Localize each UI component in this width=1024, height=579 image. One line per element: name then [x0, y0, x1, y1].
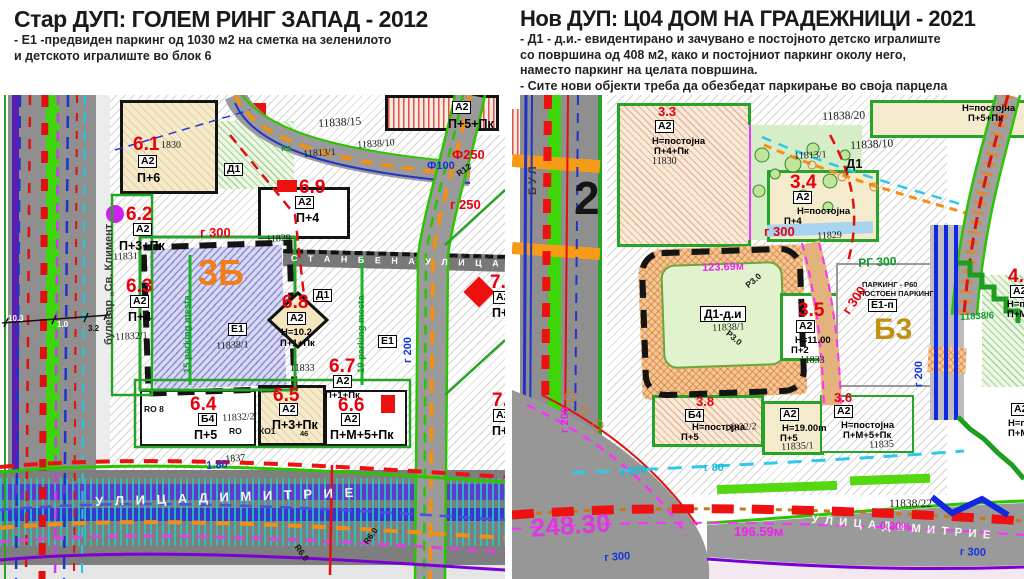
label-1-80: 1.80: [206, 460, 228, 472]
parcel-11838-10-r: 11838/10: [850, 139, 894, 153]
label-block-2: 2: [574, 175, 600, 221]
parcel-11835: 11835: [869, 440, 894, 451]
parcel-11832-1: 11832/1: [115, 331, 148, 343]
label-196-59: 196.59м: [734, 525, 783, 538]
label-3-4-class: А2: [793, 191, 812, 204]
label-3-3: 3.3: [658, 105, 676, 118]
label-7-x-class: А2: [493, 409, 505, 422]
parcel-11838-10: 11838/10: [357, 138, 395, 151]
label-g80: г 80: [704, 463, 724, 474]
label-248-30: 248.30: [530, 509, 611, 540]
label-15-parking: 15 parking mesta: [183, 295, 193, 373]
label-3-4-height: Н=постојна: [797, 207, 850, 217]
right-note-3: наместо паркинг на целата површина.: [520, 63, 1020, 79]
label-g300-diag: г 300: [840, 284, 868, 317]
label-3-4: 3.4: [790, 173, 816, 192]
label-rg-300: РГ 300: [858, 255, 897, 269]
label-3-3-class: А2: [655, 120, 674, 133]
parcel-11832-2-r: 11832/2: [724, 422, 757, 434]
parcel-1830: 1830: [161, 141, 181, 151]
label-6-8-class: А2: [287, 312, 306, 325]
label-6-1: 6.1: [133, 135, 159, 154]
left-header: Стар ДУП: ГОЛЕМ РИНГ ЗАПАД - 2012 - Е1 -…: [14, 6, 504, 64]
label-a2-topright: А2: [452, 101, 471, 114]
parcel-1837: 1837: [225, 454, 246, 465]
label-6-6-storeys: П+М+5+Пк: [330, 429, 394, 442]
label-g300-blue: г 300: [960, 547, 986, 559]
label-ro: RO: [229, 427, 242, 436]
label-3-5-class: А2: [796, 320, 815, 333]
page-root: Стар ДУП: ГОЛЕМ РИНГ ЗАПАД - 2012 - Е1 -…: [0, 0, 1024, 579]
label-e1-right: Е1: [378, 335, 397, 348]
label-topright-storeys: П+5+Пк: [968, 114, 1003, 124]
parcel-11838-20: 11838/20: [822, 110, 865, 123]
label-ro8: RO 8: [144, 405, 164, 414]
label-a2-19-class: А2: [780, 408, 799, 421]
street-name-dimitrije: У Л И Ц А Д И М И Т Р И Е: [95, 486, 357, 508]
street-name-stanbena: С Т А Н Б Е Н А У Л И Ц А 1: [291, 254, 505, 269]
label-6-2-class: А2: [133, 223, 152, 236]
label-19-parking: 19 parking mesta: [357, 295, 367, 373]
old-map-labels: булевар „Св. Климент6.11830А2П+66.2А2П+3…: [0, 95, 505, 579]
label-3-6-class: А2: [834, 405, 853, 418]
label-d1-mid: Д1: [313, 289, 332, 302]
label-6-7-class: А2: [333, 375, 352, 388]
label-123-69: 123.69м: [702, 262, 744, 274]
parcel-11831: 11831: [113, 252, 138, 263]
label-g300: г 300: [200, 226, 231, 239]
label-e1-box: Е1: [228, 323, 247, 336]
new-dup-map-2021: Б У Л23.3А2Н=постојнаП+4+Пк11830Д1г 3003…: [512, 95, 1024, 579]
label-6-9-class: А2: [295, 196, 314, 209]
label-g200-mag: г 200: [560, 407, 571, 433]
label-a2-edge: А2: [1011, 403, 1024, 416]
label-6-4-storeys: П+5: [194, 429, 217, 442]
label-ks: ks: [281, 144, 292, 154]
label-r12: R12: [455, 162, 473, 178]
label-6-3-storeys: П+4: [128, 311, 151, 324]
left-title: Стар ДУП: ГОЛЕМ РИНГ ЗАПАД - 2012: [14, 6, 504, 33]
label-7-4-storeys: П+1: [492, 307, 505, 320]
parcel-11830: 11830: [652, 157, 677, 167]
left-note-2: и детското игралиште во блок 6: [14, 49, 504, 65]
label-3b: 3Б: [198, 255, 244, 291]
label-6-6-class: А2: [341, 413, 360, 426]
parcel-11833-r: 11833: [800, 356, 825, 366]
right-header: Нов ДУП: Ц04 ДОМ НА ГРАДЕЖНИЦИ - 2021 - …: [520, 6, 1020, 94]
street-name-blvd: булевар „Св. Климент: [104, 224, 115, 345]
label-4-2-class: А2: [1010, 285, 1024, 298]
label-6-9-storeys: П+4: [296, 212, 319, 225]
label-6-2: 6.2: [126, 205, 152, 224]
label-7-4: 7.4: [490, 273, 505, 292]
label-b4-class: Б4: [685, 409, 704, 422]
label-6-9: 6.9: [299, 178, 325, 197]
parcel-11835-1: 11835/1: [781, 441, 814, 453]
label-r6-0-a: R6.0: [293, 543, 310, 563]
label-6-4-class: Б4: [198, 413, 217, 426]
label-7-x-storeys: П+1: [492, 425, 505, 438]
parcel-11813-1-r: 11813/1: [794, 150, 827, 162]
label-d1-di: Д1-д.и: [700, 306, 746, 322]
parcel-11838-22: 11838/22: [889, 499, 932, 511]
label-f250: Ф250: [452, 148, 485, 161]
label-0-30-percent: 0.30%: [879, 521, 911, 534]
label-6-7: 6.7: [329, 357, 355, 376]
label-g200-cyan: г 200: [620, 464, 648, 479]
parcel-11832-2: 11832/2: [222, 412, 255, 424]
left-note-1: - Е1 -предвиден паркинг од 1030 м2 на см…: [14, 33, 504, 49]
label-r6-0-b: R6.0: [362, 526, 379, 546]
old-dup-map-2012: булевар „Св. Климент6.11830А2П+66.2А2П+3…: [0, 95, 505, 579]
right-title: Нов ДУП: Ц04 ДОМ НА ГРАДЕЖНИЦИ - 2021: [520, 6, 1020, 32]
label-d1-top: Д1: [224, 163, 243, 176]
label-6-8: 6.8: [282, 293, 308, 312]
label-topright-storeys: П+5+Пк: [448, 118, 494, 131]
label-f100: Ф100: [427, 161, 455, 172]
right-note-1: - Д1 - д.и.- евидентирано и зачувано е п…: [520, 32, 1020, 48]
dim-1-0: 1.0: [57, 321, 68, 329]
label-b3: Б3: [874, 315, 912, 345]
label-4-2: 4.2: [1008, 267, 1024, 286]
new-map-labels: Б У Л23.3А2Н=постојнаП+4+Пк11830Д1г 3003…: [512, 95, 1024, 579]
label-6-1-class: А2: [138, 155, 157, 168]
label-a2-edge-storeys: П+М+1: [1008, 429, 1024, 439]
label-6-4: 6.4: [190, 395, 216, 414]
parcel-11838-15: 11838/15: [318, 117, 362, 131]
label-3-5: 3.5: [798, 301, 824, 320]
label-d1-park: Д1: [846, 157, 863, 170]
label-g200-vert: г 200: [914, 361, 925, 387]
parcel-11838-1: 11838/1: [216, 340, 249, 352]
right-note-4: - Сите нови објекти треба да обезбедат п…: [520, 79, 1020, 95]
dim-3-2: 3.2: [88, 325, 99, 333]
label-46: 46: [300, 430, 308, 438]
parcel-11813-1: 11813/1: [303, 148, 336, 160]
label-g250: г 250: [450, 198, 481, 211]
label-b4-storeys: П+5: [681, 433, 699, 443]
parcel-11838-6: 11838/6: [960, 311, 994, 322]
right-note-2: со површина од 408 м2, како и постојниот…: [520, 48, 1020, 64]
label-6-8-storeys: П+1+Пк: [280, 339, 315, 349]
street-name-bul: Б У Л: [528, 166, 539, 195]
label-ko1: КО1: [259, 427, 276, 436]
label-6-8-height: Н=10.2: [281, 328, 312, 338]
label-6-3-class: А2: [130, 295, 149, 308]
label-6-5-storeys: П+3+Пк: [272, 419, 318, 432]
parcel-11829: 11829: [266, 234, 291, 245]
label-g200: г 200: [403, 337, 414, 363]
label-g300-blue2: г 300: [604, 551, 631, 564]
parcel-11833: 11833: [290, 364, 315, 374]
label-6-3: 6.3: [126, 277, 152, 296]
label-3-8: 3.8: [696, 395, 714, 408]
label-3-4-storeys: П+4: [784, 217, 802, 227]
dim-10-3: 10.3: [8, 315, 24, 323]
label-7-4-class: А2: [493, 291, 505, 304]
label-r3-0-a: Р3.0: [744, 272, 763, 290]
label-4-2-storeys: П+М+1: [1007, 310, 1024, 320]
label-3-6: 3.6: [834, 391, 852, 404]
label-6-5-class: А2: [279, 403, 298, 416]
label-7-x: 7.: [492, 391, 505, 410]
label-postoen-parking: ПОСТОЕН ПАРКИНГ: [859, 290, 934, 298]
label-parking-r60: ПАРКИНГ - Р60: [862, 281, 917, 289]
label-e1-p: Е1-п: [868, 299, 897, 312]
label-6-1-storeys: П+6: [137, 172, 160, 185]
parcel-11829-r: 11829: [817, 231, 842, 242]
